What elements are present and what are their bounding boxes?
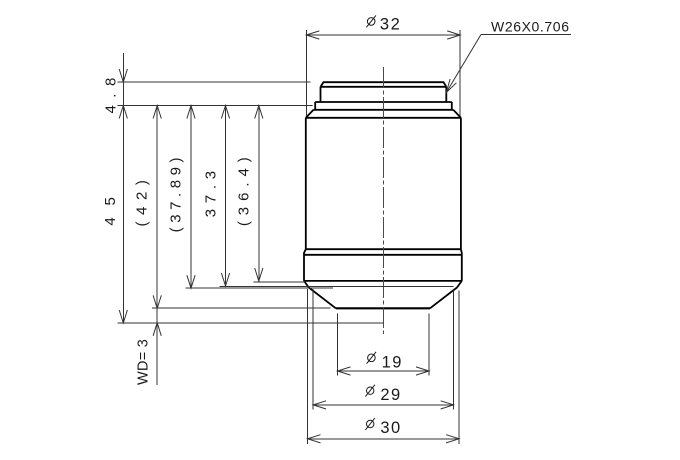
svg-text:29: 29 bbox=[380, 386, 401, 404]
svg-text:37.3: 37.3 bbox=[203, 167, 220, 217]
svg-text:30: 30 bbox=[380, 419, 401, 437]
svg-text:W26X0.706: W26X0.706 bbox=[491, 19, 570, 35]
svg-text:WD= 3: WD= 3 bbox=[135, 339, 151, 385]
svg-text:4.8: 4.8 bbox=[103, 74, 120, 114]
svg-text:(37.89): (37.89) bbox=[168, 154, 185, 233]
svg-text:32: 32 bbox=[380, 16, 401, 34]
svg-text:19: 19 bbox=[382, 353, 403, 371]
